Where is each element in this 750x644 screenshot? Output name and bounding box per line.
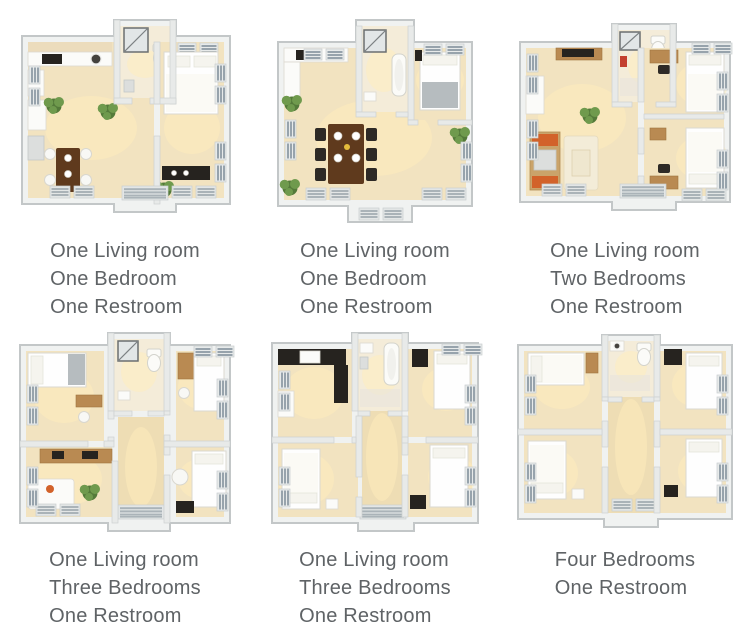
heater bbox=[620, 56, 627, 67]
shower bbox=[124, 28, 148, 52]
bed bbox=[28, 353, 86, 387]
bathroom bbox=[114, 339, 164, 411]
kitchen-counter bbox=[28, 52, 112, 66]
caption-line: Three Bedrooms bbox=[299, 574, 451, 602]
sink bbox=[118, 391, 130, 400]
bed bbox=[420, 52, 460, 110]
floorplan-caption: One Living room Two Bedrooms One Restroo… bbox=[550, 237, 700, 321]
caption-line: One Bedroom bbox=[50, 265, 200, 293]
kitchenette bbox=[664, 349, 682, 365]
bathroom bbox=[608, 341, 654, 397]
floorplan-image-2 bbox=[262, 8, 488, 224]
bed bbox=[686, 353, 722, 409]
bedroom bbox=[414, 44, 466, 120]
living-room bbox=[26, 447, 112, 517]
floorplan-image-4 bbox=[12, 327, 238, 533]
floorplan-card: One Living room One Bedroom One Restroom bbox=[0, 0, 250, 321]
dresser bbox=[664, 485, 678, 497]
caption-line: Three Bedrooms bbox=[49, 574, 201, 602]
bed bbox=[430, 445, 468, 507]
floorplan-gallery: One Living room One Bedroom One Restroom bbox=[0, 0, 750, 630]
bedroom-bottom-right bbox=[660, 435, 726, 513]
bedroom bbox=[154, 42, 224, 198]
sink bbox=[610, 341, 624, 351]
sink bbox=[364, 92, 376, 101]
floorplan-caption: One Living room Three Bedrooms One Restr… bbox=[49, 546, 201, 630]
bedroom-top-right bbox=[660, 349, 726, 429]
floorplan-caption: One Living room One Bedroom One Restroom bbox=[50, 237, 200, 321]
bathroom bbox=[358, 339, 402, 411]
caption-line: One Restroom bbox=[50, 293, 200, 321]
floorplan-card: One Living room Three Bedrooms One Restr… bbox=[0, 321, 250, 630]
caption-line: One Restroom bbox=[49, 602, 201, 630]
bathroom bbox=[362, 26, 408, 112]
caption-line: One Restroom bbox=[299, 602, 451, 630]
wardrobe bbox=[178, 353, 194, 379]
bed bbox=[528, 353, 584, 385]
floorplan-card: Four Bedrooms One Restroom bbox=[500, 321, 750, 630]
hallway bbox=[118, 417, 164, 519]
dresser bbox=[176, 501, 194, 513]
floorplan-card: One Living room Three Bedrooms One Restr… bbox=[250, 321, 500, 630]
nightstand bbox=[326, 499, 338, 509]
shower bbox=[620, 32, 640, 50]
floorplan-caption: One Living room Three Bedrooms One Restr… bbox=[299, 546, 451, 630]
floorplan-image-3 bbox=[512, 8, 738, 224]
bed bbox=[434, 351, 470, 409]
entry-mat bbox=[122, 186, 168, 200]
caption-line: One Living room bbox=[50, 237, 200, 265]
nightstand bbox=[415, 50, 422, 61]
toilet bbox=[637, 343, 651, 366]
desk bbox=[586, 353, 598, 373]
gallery-row-1: One Living room One Bedroom One Restroom bbox=[0, 0, 750, 321]
caption-line: One Living room bbox=[49, 546, 201, 574]
gallery-row-2: One Living room Three Bedrooms One Restr… bbox=[0, 321, 750, 630]
entry-mat bbox=[118, 505, 164, 519]
floorplan-caption: One Living room One Bedroom One Restroom bbox=[300, 237, 450, 321]
floorplan-image-1 bbox=[12, 8, 238, 224]
nightstand bbox=[572, 489, 584, 499]
bathtub bbox=[384, 343, 399, 385]
cabinet bbox=[28, 136, 44, 160]
hallway bbox=[608, 397, 656, 513]
bed bbox=[686, 439, 722, 497]
floorplan-card: One Living room One Bedroom One Restroom bbox=[250, 0, 500, 321]
cabinet bbox=[412, 349, 428, 367]
dining-table bbox=[315, 124, 377, 184]
caption-line: One Restroom bbox=[300, 293, 450, 321]
entry-mat bbox=[360, 505, 406, 519]
tv-cabinet bbox=[556, 48, 602, 60]
round-chair bbox=[172, 469, 188, 485]
caption-line: One Restroom bbox=[550, 293, 700, 321]
floorplan-image-5 bbox=[262, 327, 488, 533]
desk bbox=[410, 495, 426, 509]
bathtub bbox=[392, 54, 406, 96]
shower bbox=[364, 30, 386, 52]
floorplan-card: One Living room Two Bedrooms One Restroo… bbox=[500, 0, 750, 321]
entry-mat bbox=[620, 184, 666, 198]
nightstand bbox=[650, 128, 666, 140]
caption-line: One Bedroom bbox=[300, 265, 450, 293]
floorplan-image-6 bbox=[512, 327, 738, 533]
shower bbox=[118, 341, 138, 361]
floorplan-caption: Four Bedrooms One Restroom bbox=[555, 546, 695, 602]
caption-line: One Living room bbox=[550, 237, 700, 265]
hallway bbox=[360, 411, 406, 519]
caption-line: Four Bedrooms bbox=[555, 546, 695, 574]
caption-line: One Restroom bbox=[555, 574, 695, 602]
sink bbox=[360, 343, 373, 353]
sofa bbox=[530, 132, 560, 190]
rug bbox=[564, 136, 598, 190]
caption-line: One Living room bbox=[299, 546, 451, 574]
toilet bbox=[147, 349, 161, 372]
bar-counter bbox=[40, 449, 112, 463]
caption-line: One Living room bbox=[300, 237, 450, 265]
caption-line: Two Bedrooms bbox=[550, 265, 700, 293]
